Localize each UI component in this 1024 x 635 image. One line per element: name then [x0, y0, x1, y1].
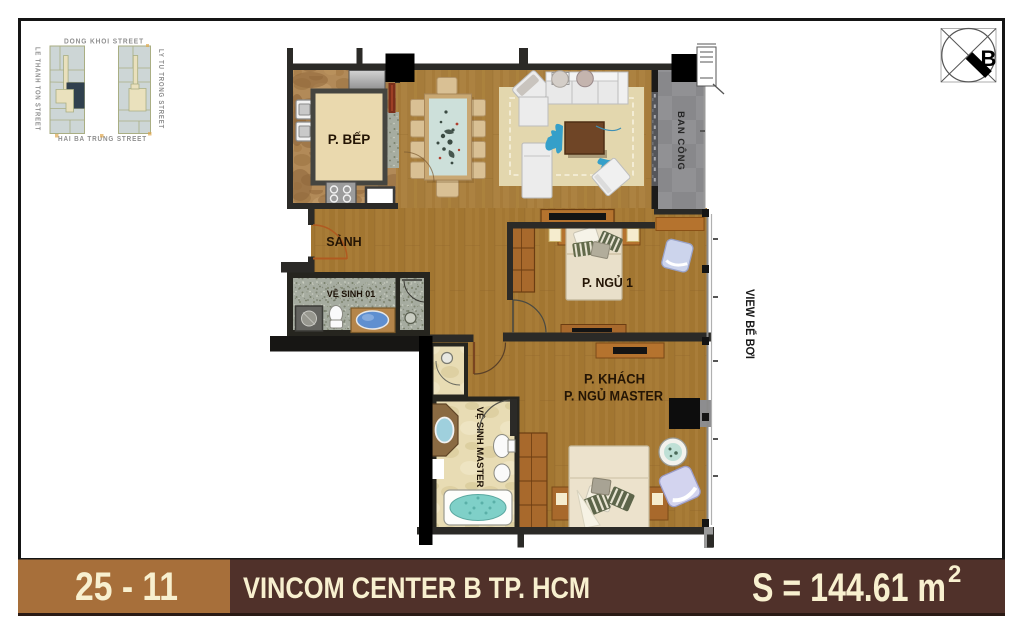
svg-text:BAN CÔNG: BAN CÔNG	[675, 111, 687, 171]
svg-text:P. KHÁCH: P. KHÁCH	[584, 372, 645, 387]
svg-text:DONG KHOI STREET: DONG KHOI STREET	[64, 37, 144, 46]
svg-text:2: 2	[948, 561, 961, 588]
svg-text:P. NGỦ 1: P. NGỦ 1	[582, 275, 633, 290]
svg-text:VỆ SINH MASTER: VỆ SINH MASTER	[474, 407, 486, 488]
svg-text:VINCOM CENTER B TP. HCM: VINCOM CENTER B TP. HCM	[243, 572, 590, 605]
svg-text:LY TU TRONG STREET: LY TU TRONG STREET	[157, 49, 166, 129]
svg-text:SẢNH: SẢNH	[326, 234, 361, 249]
svg-text:LE THANH TON STREET: LE THANH TON STREET	[34, 47, 43, 131]
svg-text:VIEW BỂ BƠI: VIEW BỂ BƠI	[743, 289, 756, 359]
svg-text:VỆ SINH 01: VỆ SINH 01	[327, 288, 376, 299]
svg-text:25 - 11: 25 - 11	[75, 565, 178, 609]
svg-text:P. NGỦ MASTER: P. NGỦ MASTER	[564, 389, 663, 404]
svg-text:S = 144.61 m: S = 144.61 m	[752, 566, 946, 610]
svg-text:P. BẾP: P. BẾP	[328, 132, 371, 147]
svg-text:B: B	[981, 46, 997, 71]
